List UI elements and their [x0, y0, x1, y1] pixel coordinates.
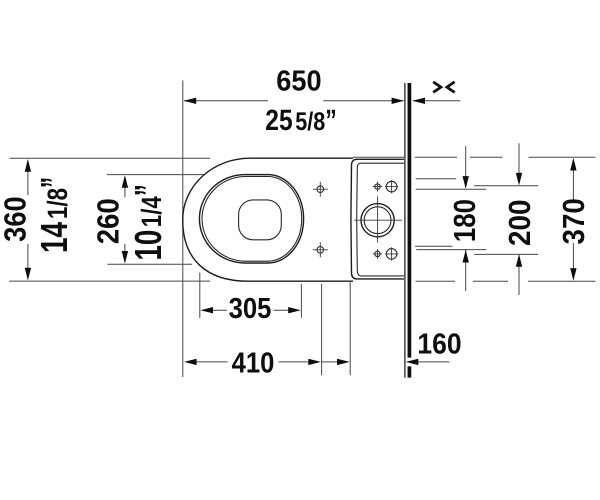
svg-text:360: 360: [0, 196, 32, 242]
svg-text:260: 260: [92, 198, 126, 244]
svg-text:180: 180: [448, 199, 482, 242]
svg-text:410: 410: [232, 347, 275, 379]
svg-text:370: 370: [557, 198, 591, 244]
svg-text:200: 200: [503, 200, 537, 246]
svg-text:650: 650: [276, 66, 321, 98]
svg-text:160: 160: [417, 329, 461, 361]
svg-text:305: 305: [229, 293, 272, 325]
svg-text:255/8”: 255/8”: [265, 104, 337, 137]
